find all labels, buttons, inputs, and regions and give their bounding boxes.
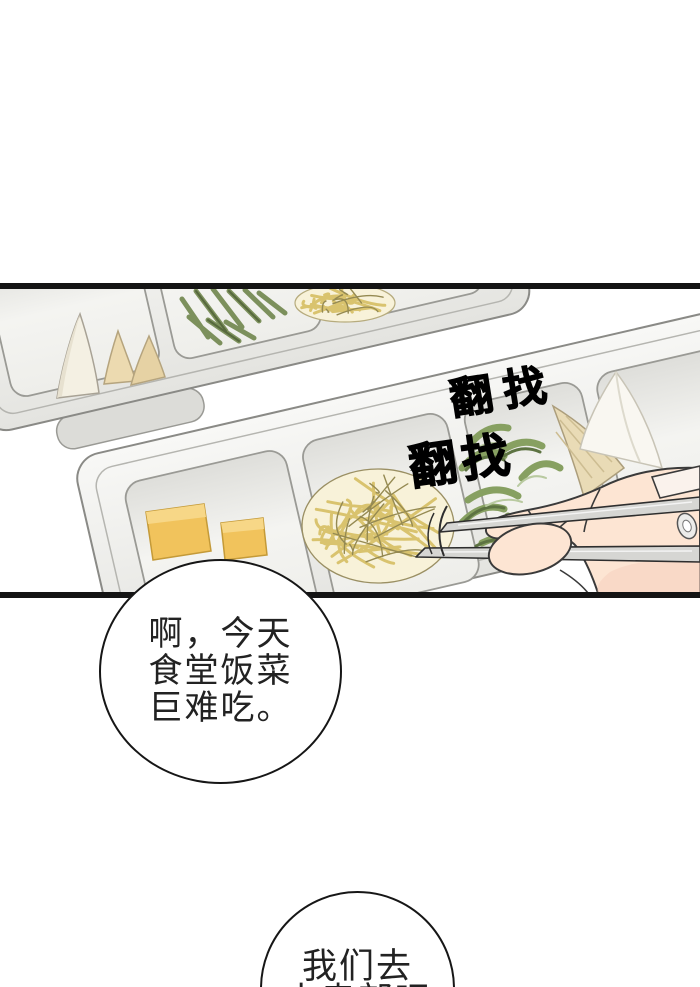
panel-border-top [0, 283, 700, 289]
speech-line: 巨难吃。 [149, 690, 293, 727]
panel-artwork [0, 0, 700, 987]
speech-line: 食堂饭菜 [149, 653, 293, 690]
speech-text: 我们去 小卖部吧 [283, 950, 431, 987]
panel-border-bottom [0, 592, 700, 598]
speech-line: 啊，今天 [149, 616, 293, 653]
sfx-rummage-2: 翻找 [406, 430, 518, 492]
speech-line: 我们去 [283, 950, 431, 984]
comic-page: 翻找 翻找 啊，今天 食堂饭菜 巨难吃。 我们去 小卖部吧 [0, 0, 700, 987]
speech-text: 啊，今天 食堂饭菜 巨难吃。 [149, 616, 293, 727]
panel-scene [0, 111, 700, 662]
speech-bubble-1: 啊，今天 食堂饭菜 巨难吃。 [99, 559, 342, 784]
